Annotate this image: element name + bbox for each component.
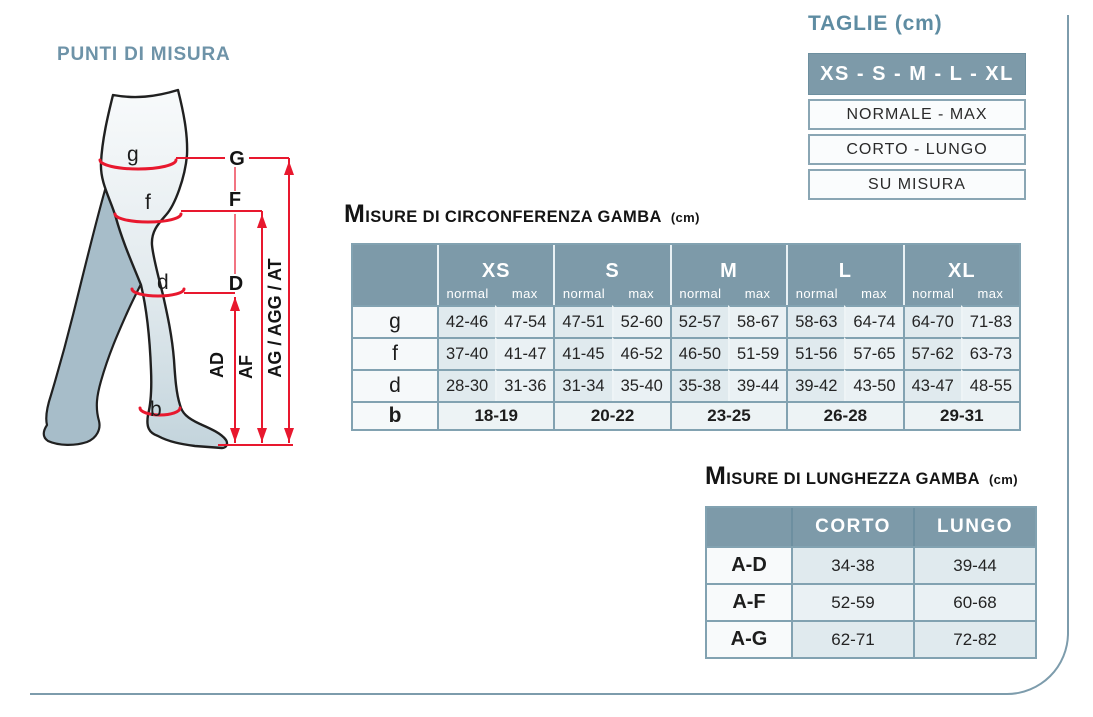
taglie-sizes-header: XS - S - M - L - XL [808, 53, 1026, 95]
cell-d-l-max: 43-50 [844, 369, 902, 401]
circumference-table: XS normalmax S normalmax M normalmax L n… [351, 243, 1021, 431]
cell-d-s-max: 35-40 [612, 369, 670, 401]
cell-g-s-max: 52-60 [612, 305, 670, 337]
sub-max: max [613, 286, 670, 301]
cell-ag-lungo: 72-82 [913, 620, 1035, 657]
ad-arrow-down [230, 428, 240, 442]
sub-normal: normal [788, 286, 845, 301]
cell-d-l-normal: 39-42 [786, 369, 844, 401]
cell-f-xs-max: 41-47 [495, 337, 553, 369]
length-header-lungo: LUNGO [913, 508, 1035, 546]
cell-f-m-max: 51-59 [728, 337, 786, 369]
circ-size-m: M normalmax [670, 245, 786, 305]
size-name: M [672, 260, 786, 283]
length-title-unit: (cm) [989, 472, 1018, 487]
circ-row-label-g: g [353, 305, 437, 337]
af-arrow-up [257, 214, 267, 228]
cell-f-s-normal: 41-45 [553, 337, 611, 369]
cell-g-l-normal: 58-63 [786, 305, 844, 337]
circ-corner-cell [353, 245, 437, 305]
circ-size-s: S normalmax [553, 245, 669, 305]
cell-af-lungo: 60-68 [913, 583, 1035, 620]
circ-row-label-d: d [353, 369, 437, 401]
circumference-title: MISURE DI CIRCONFERENZA GAMBA (cm) [344, 200, 700, 229]
af-arrow-down [257, 428, 267, 442]
cell-af-corto: 52-59 [791, 583, 913, 620]
size-name: XS [439, 260, 553, 283]
length-title-text: MISURE DI LUNGHEZZA GAMBA [705, 462, 980, 491]
cell-f-xl-max: 63-73 [961, 337, 1019, 369]
cell-f-m-normal: 46-50 [670, 337, 728, 369]
cell-g-s-normal: 47-51 [553, 305, 611, 337]
cell-b-l: 26-28 [786, 401, 902, 429]
taglie-row-su-misura: SU MISURA [808, 169, 1026, 200]
cell-d-xl-max: 48-55 [961, 369, 1019, 401]
circ-row-label-f: f [353, 337, 437, 369]
cell-g-m-normal: 52-57 [670, 305, 728, 337]
cell-f-l-max: 57-65 [844, 337, 902, 369]
line-label-F: F [229, 189, 241, 211]
cell-d-xs-normal: 28-30 [437, 369, 495, 401]
circ-size-xl: XL normalmax [903, 245, 1019, 305]
leg-measurement-diagram: g f d b G F D AD AF AG / AGG / AT [35, 85, 315, 465]
taglie-row-corto-lungo: CORTO - LUNGO [808, 134, 1026, 165]
cell-g-xs-max: 47-54 [495, 305, 553, 337]
length-corner-cell [707, 508, 791, 546]
cell-f-xl-normal: 57-62 [903, 337, 961, 369]
cell-g-xl-max: 71-83 [961, 305, 1019, 337]
cell-g-m-max: 58-67 [728, 305, 786, 337]
cell-g-l-max: 64-74 [844, 305, 902, 337]
length-table: CORTO LUNGO A-D 34-38 39-44 A-F 52-59 60… [705, 506, 1037, 659]
ag-arrow-down [284, 428, 294, 442]
length-row-label-ag: A-G [707, 620, 791, 657]
cell-b-xl: 29-31 [903, 401, 1019, 429]
line-label-D: D [229, 273, 243, 295]
circ-size-l: L normalmax [786, 245, 902, 305]
length-row-label-ad: A-D [707, 546, 791, 583]
length-title: MISURE DI LUNGHEZZA GAMBA (cm) [705, 462, 1018, 491]
sub-normal: normal [672, 286, 729, 301]
cell-g-xs-normal: 42-46 [437, 305, 495, 337]
leg-label-f: f [145, 191, 151, 214]
cell-f-l-normal: 51-56 [786, 337, 844, 369]
cell-f-s-max: 46-52 [612, 337, 670, 369]
taglie-table: XS - S - M - L - XL NORMALE - MAX CORTO … [808, 53, 1026, 200]
size-name: S [555, 260, 669, 283]
cell-d-m-normal: 35-38 [670, 369, 728, 401]
circ-row-label-b: b [353, 401, 437, 429]
ad-arrow-up [230, 297, 240, 311]
size-name: XL [905, 260, 1019, 283]
sub-max: max [845, 286, 902, 301]
circ-size-xs: XS normalmax [437, 245, 553, 305]
length-label-af: AF [236, 355, 256, 379]
sub-max: max [962, 286, 1019, 301]
leg-label-g: g [127, 143, 139, 166]
cell-ad-corto: 34-38 [791, 546, 913, 583]
sub-normal: normal [905, 286, 962, 301]
cell-d-xs-max: 31-36 [495, 369, 553, 401]
cell-ag-corto: 62-71 [791, 620, 913, 657]
circumference-title-unit: (cm) [671, 210, 700, 225]
sub-max: max [496, 286, 553, 301]
cell-g-xl-normal: 64-70 [903, 305, 961, 337]
size-name: L [788, 260, 902, 283]
sub-normal: normal [439, 286, 496, 301]
length-header-corto: CORTO [791, 508, 913, 546]
punti-di-misura-title: PUNTI DI MISURA [57, 44, 231, 66]
taglie-row-normale-max: NORMALE - MAX [808, 99, 1026, 130]
length-label-ag: AG / AGG / AT [265, 258, 285, 377]
cell-f-xs-normal: 37-40 [437, 337, 495, 369]
leg-label-d: d [157, 271, 169, 294]
cell-ad-lungo: 39-44 [913, 546, 1035, 583]
cell-d-xl-normal: 43-47 [903, 369, 961, 401]
cell-b-m: 23-25 [670, 401, 786, 429]
ag-arrow-up [284, 161, 294, 175]
sub-max: max [729, 286, 786, 301]
cell-d-s-normal: 31-34 [553, 369, 611, 401]
taglie-title: TAGLIE (cm) [808, 12, 942, 36]
cell-b-xs: 18-19 [437, 401, 553, 429]
size-guide-page: PUNTI DI MISURA [0, 0, 1093, 717]
leg-diagram-svg: g f d b G F D AD AF AG / AGG / AT [35, 85, 315, 465]
line-label-G: G [229, 148, 245, 170]
length-label-ad: AD [207, 352, 227, 378]
cell-b-s: 20-22 [553, 401, 669, 429]
length-row-label-af: A-F [707, 583, 791, 620]
leg-label-b: b [150, 398, 162, 421]
cell-d-m-max: 39-44 [728, 369, 786, 401]
sub-normal: normal [555, 286, 612, 301]
circumference-title-text: MISURE DI CIRCONFERENZA GAMBA [344, 200, 662, 229]
